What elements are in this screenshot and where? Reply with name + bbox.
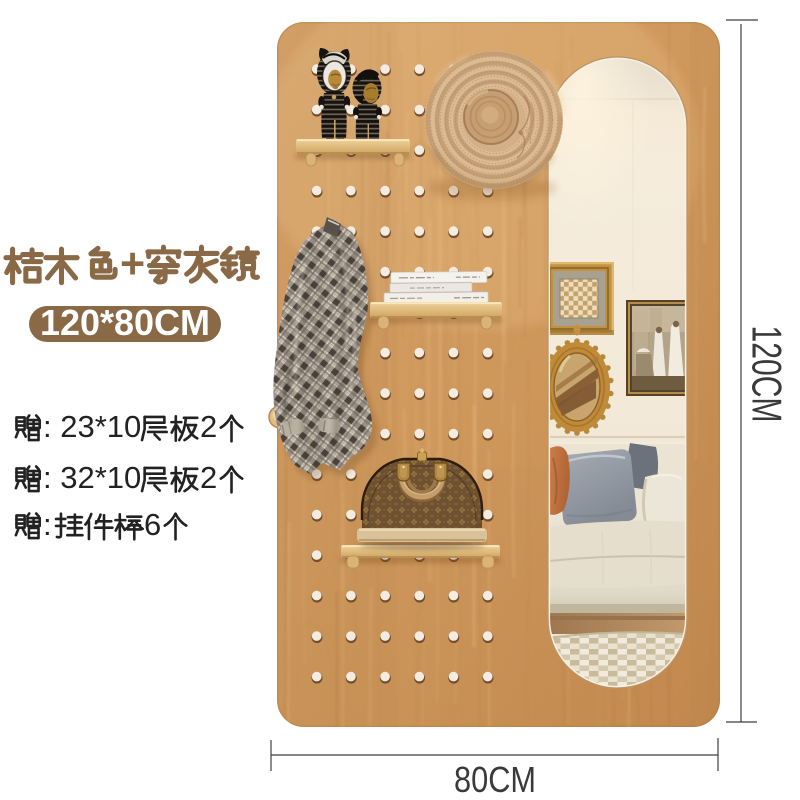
svg-text:2: 2 [200,409,217,444]
svg-text:120CM: 120CM [744,326,791,423]
svg-text:: 23*10: : 23*10 [43,409,141,444]
svg-text:120*80CM: 120*80CM [40,302,210,343]
svg-text:6: 6 [144,507,161,542]
svg-text:2: 2 [200,460,217,495]
svg-text::: : [43,507,52,542]
svg-text:80CM: 80CM [454,759,536,800]
svg-text:+: + [120,240,145,288]
svg-text:: 32*10: : 32*10 [43,460,141,495]
